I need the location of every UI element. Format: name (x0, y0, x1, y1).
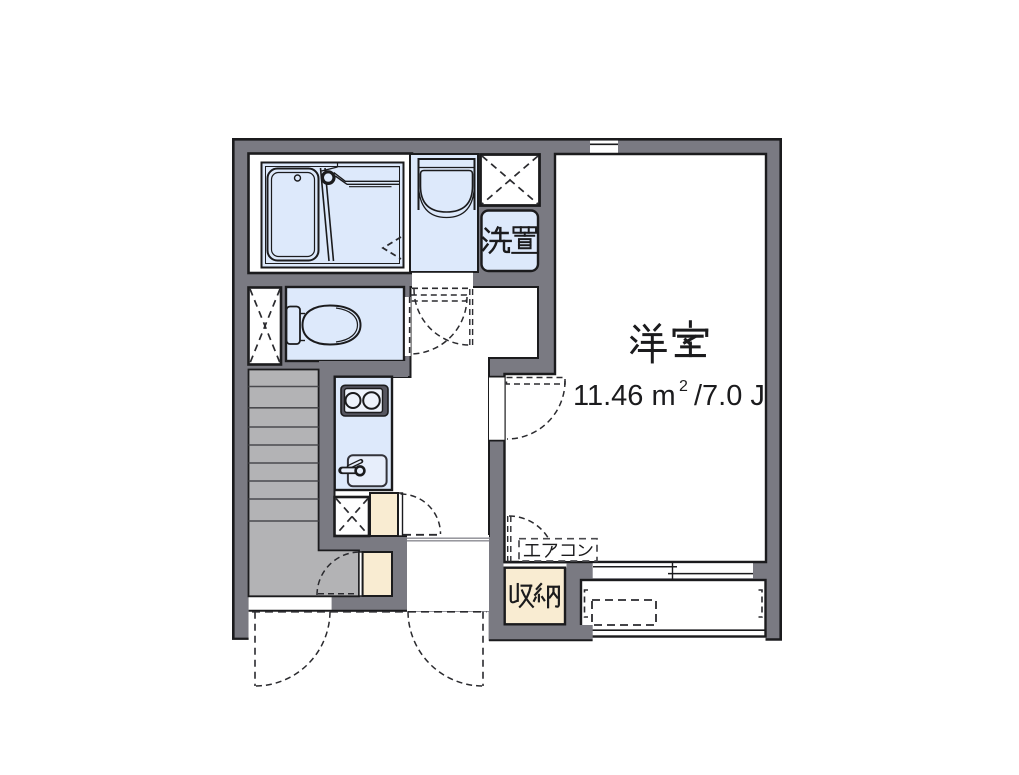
svg-text:2: 2 (679, 378, 688, 395)
svg-text:/7.0 J: /7.0 J (694, 380, 765, 412)
svg-text:11.46 m: 11.46 m (573, 380, 676, 412)
